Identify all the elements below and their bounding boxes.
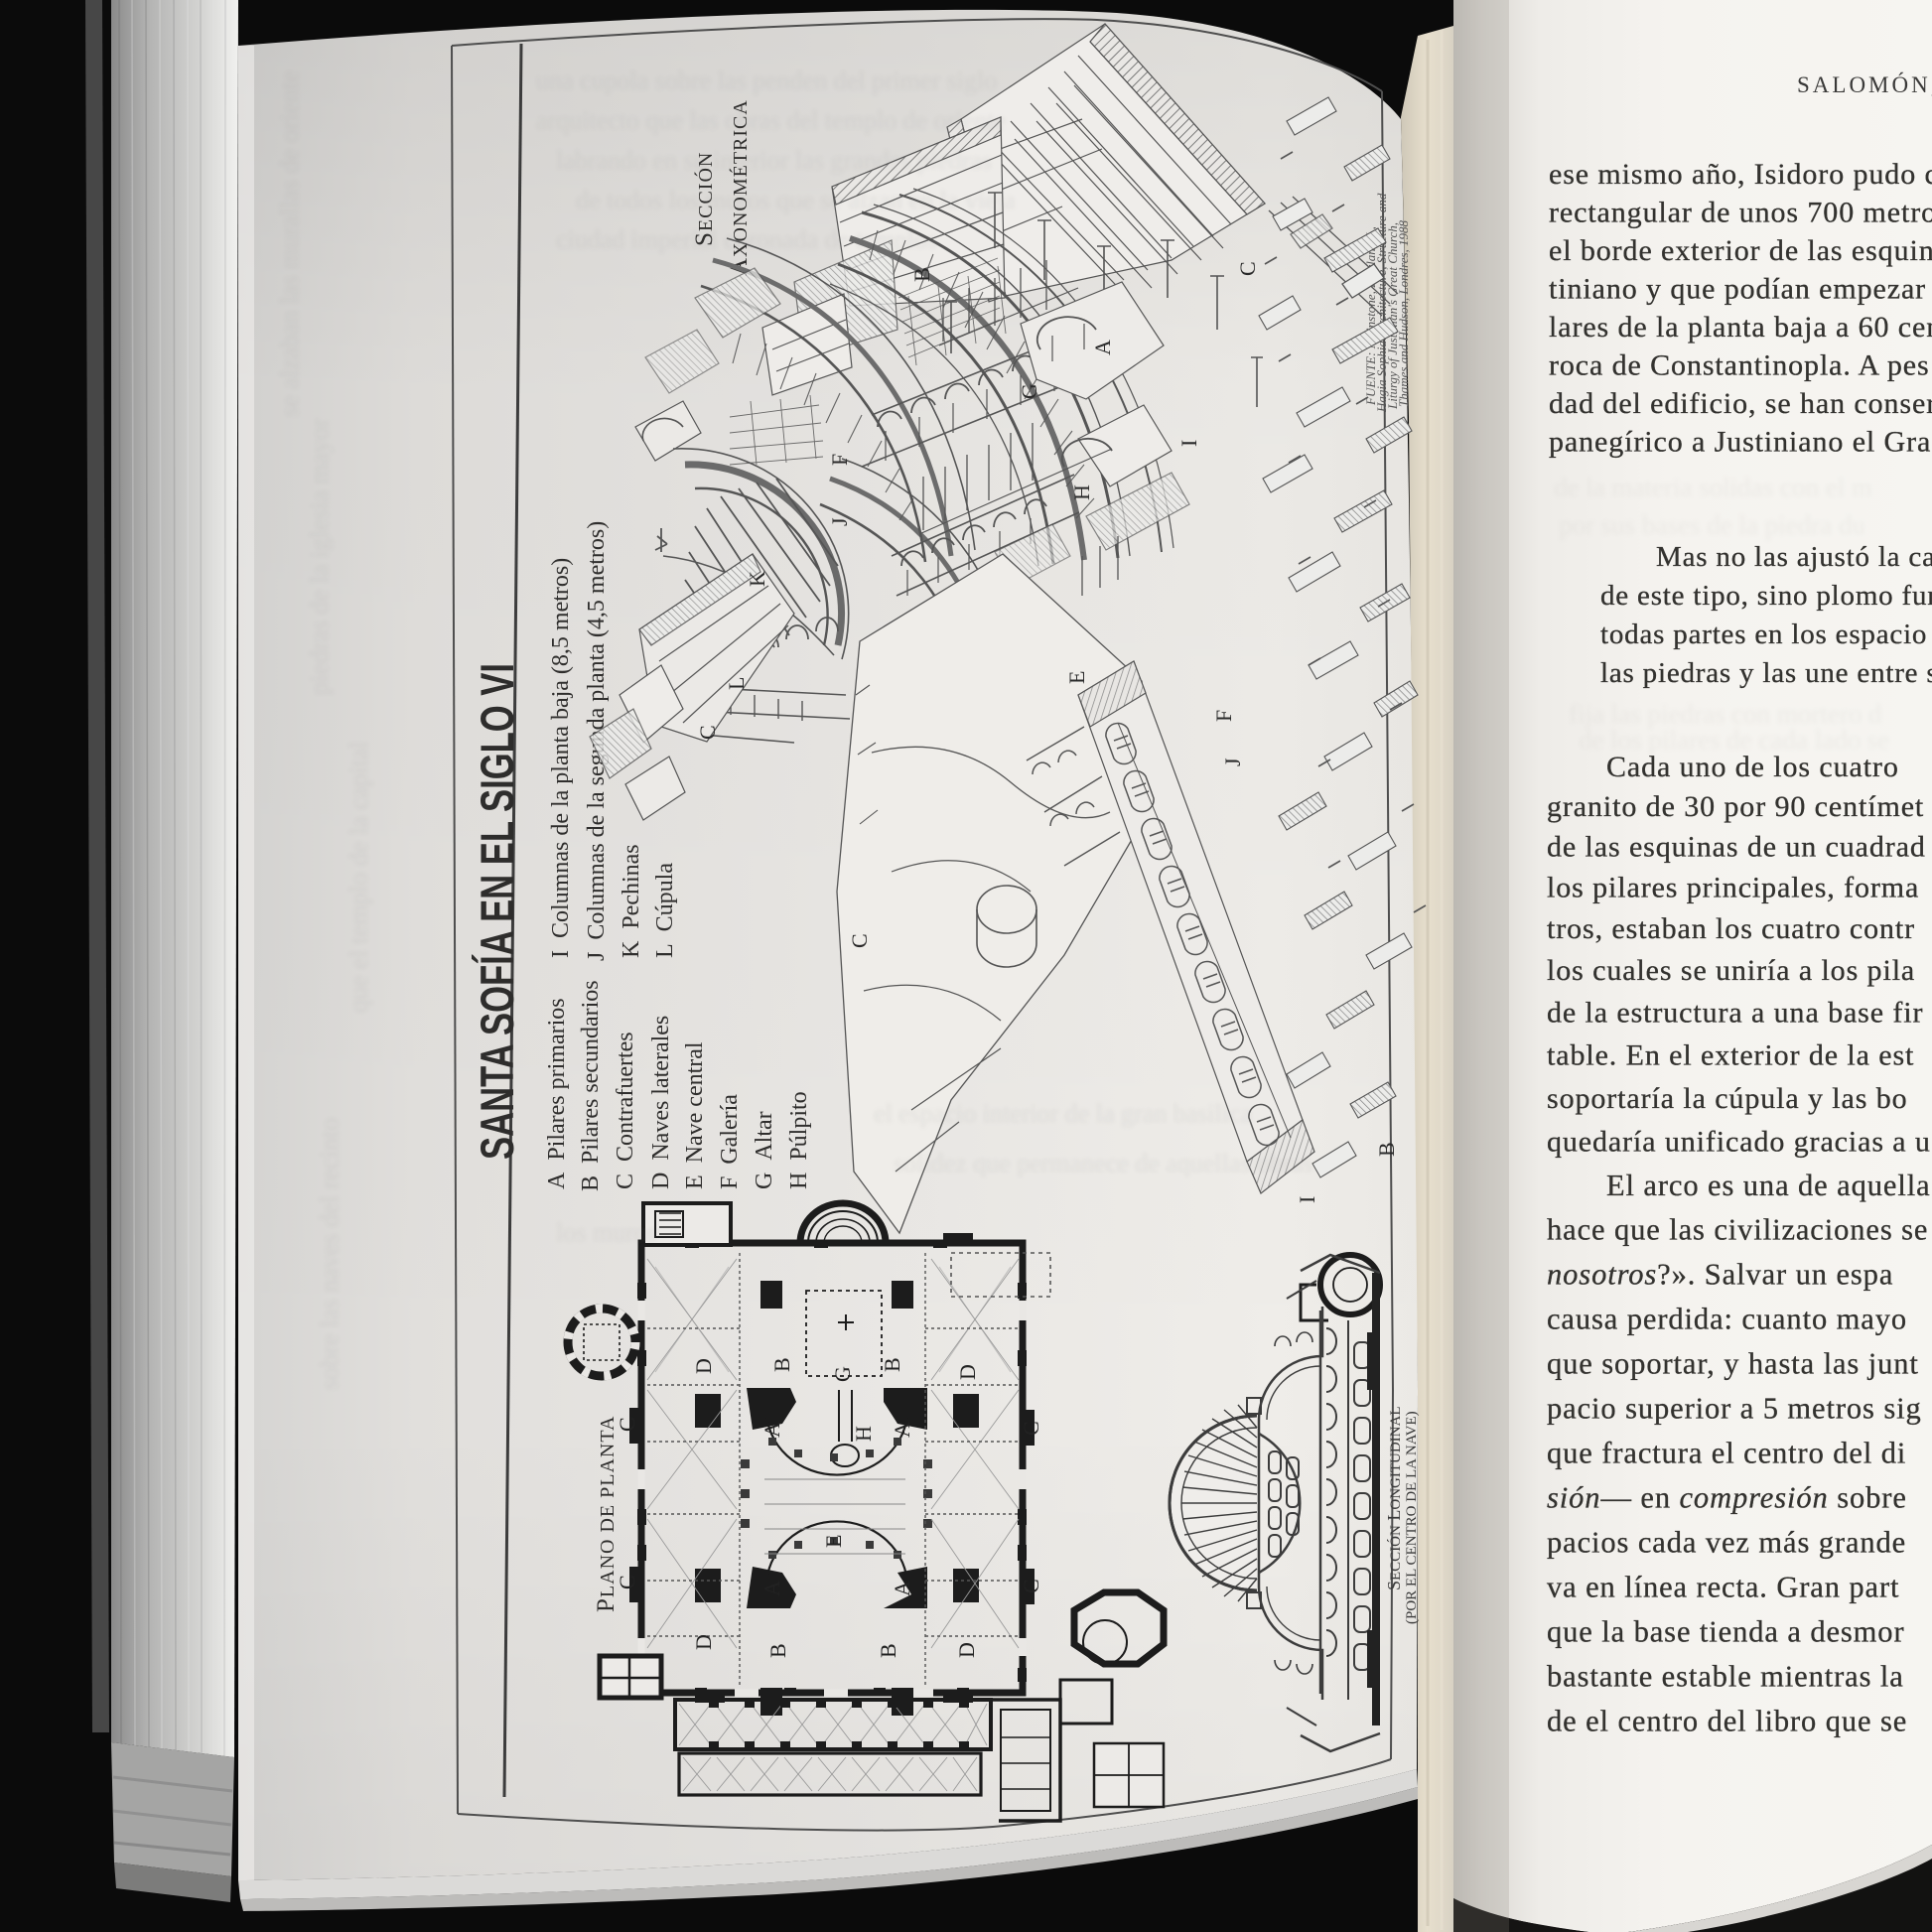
svg-text:I: I <box>1295 1196 1319 1203</box>
svg-text:H: H <box>851 1426 876 1442</box>
svg-text:C: C <box>847 933 872 948</box>
svg-text:El arco es una de aquella: El arco es una de aquella <box>1606 1169 1931 1202</box>
svg-text:las piedras y las une entre s: las piedras y las une entre s <box>1600 657 1932 689</box>
svg-text:que el templo de la capital: que el templo de la capital <box>345 741 373 1013</box>
svg-text:C Contrafuertes: C Contrafuertes <box>613 1032 638 1189</box>
svg-text:ciudad imperial coronada de te: ciudad imperial coronada de templos <box>556 225 937 254</box>
svg-text:H: H <box>1069 484 1094 500</box>
svg-text:C: C <box>1235 261 1260 276</box>
svg-text:D: D <box>691 1634 716 1650</box>
svg-text:que la base tienda a desmor: que la base tienda a desmor <box>1547 1615 1905 1649</box>
svg-text:(POR EL CENTRO DE LA NAVE): (POR EL CENTRO DE LA NAVE) <box>1404 1411 1420 1624</box>
svg-text:A Pilares primarios: A Pilares primarios <box>544 998 570 1189</box>
svg-text:se alzaban las murallas de ori: se alzaban las murallas de oriente <box>275 70 304 417</box>
svg-text:H Púlpito: H Púlpito <box>786 1091 812 1189</box>
svg-text:B: B <box>880 1357 904 1372</box>
svg-text:que soportar, y hasta las junt: que soportar, y hasta las junt <box>1547 1347 1919 1381</box>
svg-text:causa perdida: cuanto mayo: causa perdida: cuanto mayo <box>1547 1303 1907 1336</box>
svg-text:E Nave central: E Nave central <box>682 1041 708 1189</box>
svg-text:de las esquinas de un cuadrad: de las esquinas de un cuadrad <box>1547 831 1926 864</box>
svg-text:B: B <box>765 1643 790 1658</box>
svg-text:pacios cada vez más grande: pacios cada vez más grande <box>1547 1526 1906 1560</box>
svg-text:G: G <box>1017 383 1041 399</box>
svg-text:que fractura el centro del di: que fractura el centro del di <box>1547 1437 1906 1470</box>
svg-text:sobre las naves del recinto: sobre las naves del recinto <box>315 1118 344 1390</box>
svg-text:SANTA SOFÍA EN EL SIGLO VI: SANTA SOFÍA EN EL SIGLO VI <box>471 663 523 1160</box>
svg-text:todas partes en los espacio: todas partes en los espacio <box>1600 619 1927 650</box>
svg-text:Thames and Hudson, Londres, 19: Thames and Hudson, Londres, 1988 <box>1396 219 1411 407</box>
svg-text:granito de 30 por 90 centímet: granito de 30 por 90 centímet <box>1547 790 1924 823</box>
svg-text:bastante estable mientras la: bastante estable mientras la <box>1547 1660 1904 1694</box>
svg-text:F: F <box>827 454 852 466</box>
svg-text:D Naves laterales: D Naves laterales <box>648 1016 674 1189</box>
svg-text:hace que las civilizaciones se: hace que las civilizaciones se <box>1547 1213 1928 1247</box>
svg-text:F: F <box>1211 710 1236 722</box>
svg-text:C: C <box>615 1417 639 1432</box>
svg-text:C: C <box>695 725 720 740</box>
svg-text:tiniano y que podían empezar: tiniano y que podían empezar <box>1549 273 1926 306</box>
svg-text:B: B <box>909 267 934 282</box>
svg-text:F Galería: F Galería <box>717 1094 743 1189</box>
svg-text:sión— en compresión sobre: sión— en compresión sobre <box>1547 1481 1907 1515</box>
svg-text:B: B <box>876 1643 900 1658</box>
svg-text:G: G <box>830 1366 855 1382</box>
svg-text:I: I <box>1176 440 1201 447</box>
svg-text:J: J <box>827 517 852 526</box>
svg-text:E: E <box>821 1535 846 1548</box>
svg-text:de la materia solidas con el m: de la materia solidas con el m <box>1554 473 1872 502</box>
svg-text:D: D <box>954 1642 979 1658</box>
svg-text:nosotros?». Salvar un espa: nosotros?». Salvar un espa <box>1547 1258 1893 1292</box>
svg-text:va en línea recta. Gran part: va en línea recta. Gran part <box>1547 1571 1899 1604</box>
svg-text:L Cúpula: L Cúpula <box>652 863 678 958</box>
svg-text:B: B <box>1374 1142 1399 1157</box>
svg-text:los muros: los muros <box>556 1218 657 1247</box>
svg-text:panegírico a Justiniano el Gra: panegírico a Justiniano el Gra <box>1549 426 1931 459</box>
svg-text:rectangular de unos 700 metro: rectangular de unos 700 metro <box>1549 197 1932 229</box>
svg-text:una cupola sobre las penden de: una cupola sobre las penden del primer s… <box>536 67 997 95</box>
svg-text:B: B <box>769 1357 794 1372</box>
svg-text:los pilares principales, forma: los pilares principales, forma <box>1547 872 1919 904</box>
svg-text:A: A <box>759 1422 784 1438</box>
svg-text:de este tipo, sino plomo fun: de este tipo, sino plomo fun <box>1600 580 1932 612</box>
svg-text:ese mismo año, Isidoro pudo c: ese mismo año, Isidoro pudo c <box>1549 158 1932 191</box>
svg-text:table. En el exterior de la es: table. En el exterior de la est <box>1547 1039 1914 1072</box>
svg-text:labrando en su interior las gr: labrando en su interior las grandes pied… <box>556 146 992 175</box>
svg-text:roca de Constantinopla. A pes: roca de Constantinopla. A pes <box>1549 349 1930 382</box>
svg-text:I Columnas de la planta baja: I Columnas de la planta baja (8,5 metros… <box>548 558 574 958</box>
svg-text:soportaría la cúpula y las bo: soportaría la cúpula y las bo <box>1547 1082 1908 1115</box>
svg-text:G Altar: G Altar <box>752 1111 777 1189</box>
svg-text:A: A <box>1090 340 1115 355</box>
svg-text:el borde exterior de las esqui: el borde exterior de las esquin <box>1549 234 1932 267</box>
svg-text:de la estructura a una base fi: de la estructura a una base fir <box>1547 997 1923 1030</box>
svg-text:el espacio interior de la gran: el espacio interior de la gran basilica <box>874 1099 1253 1128</box>
svg-text:L: L <box>724 677 749 690</box>
svg-text:A: A <box>890 1581 914 1596</box>
svg-text:de los pilares de cada lado se: de los pilares de cada lado se <box>1579 725 1889 755</box>
svg-text:C: C <box>615 1575 639 1589</box>
svg-text:B Pilares secundarios: B Pilares secundarios <box>578 980 604 1191</box>
svg-text:pacio superior a 5 metros sig: pacio superior a 5 metros sig <box>1547 1392 1922 1426</box>
svg-text:dad del edificio, se han conse: dad del edificio, se han conser <box>1549 387 1932 420</box>
svg-text:C: C <box>1019 1421 1043 1436</box>
svg-text:SALOMÓN,: SALOMÓN, <box>1797 71 1932 97</box>
svg-text:K: K <box>745 571 769 587</box>
svg-text:D: D <box>955 1364 980 1380</box>
svg-text:por sus bases de la piedra du: por sus bases de la piedra du <box>1559 510 1865 540</box>
svg-text:los cuales se uniría a los pil: los cuales se uniría a los pila <box>1547 954 1915 987</box>
svg-text:piedras de la iglesia mayor: piedras de la iglesia mayor <box>305 418 334 695</box>
svg-text:Mas no las ajustó la cal: Mas no las ajustó la cal <box>1656 541 1932 573</box>
svg-text:quedaría unificado gracias a u: quedaría unificado gracias a u <box>1547 1126 1931 1159</box>
svg-text:de el centro del libro que se: de el centro del libro que se <box>1547 1705 1907 1738</box>
svg-text:arquitecto que las obras del t: arquitecto que las obras del templo de o… <box>536 106 1006 135</box>
svg-text:de todos los muros que se alza: de todos los muros que se alzan en la vi… <box>576 186 1016 214</box>
svg-text:E: E <box>1064 671 1089 684</box>
svg-text:A: A <box>759 1581 784 1596</box>
svg-text:K Pechinas: K Pechinas <box>619 844 644 958</box>
svg-text:C: C <box>1019 1579 1043 1593</box>
svg-text:A: A <box>890 1422 914 1438</box>
svg-text:J: J <box>1220 758 1245 766</box>
svg-text:Cada uno de los cuatro: Cada uno de los cuatro <box>1606 751 1899 783</box>
svg-text:D: D <box>691 1358 716 1374</box>
svg-text:tros, estaban los cuatro contr: tros, estaban los cuatro contr <box>1547 912 1915 945</box>
svg-text:solidez que permanece de aquel: solidez que permanece de aquellas obras <box>894 1149 1312 1177</box>
svg-text:lares de la planta baja a 60 c: lares de la planta baja a 60 cen <box>1549 311 1932 344</box>
